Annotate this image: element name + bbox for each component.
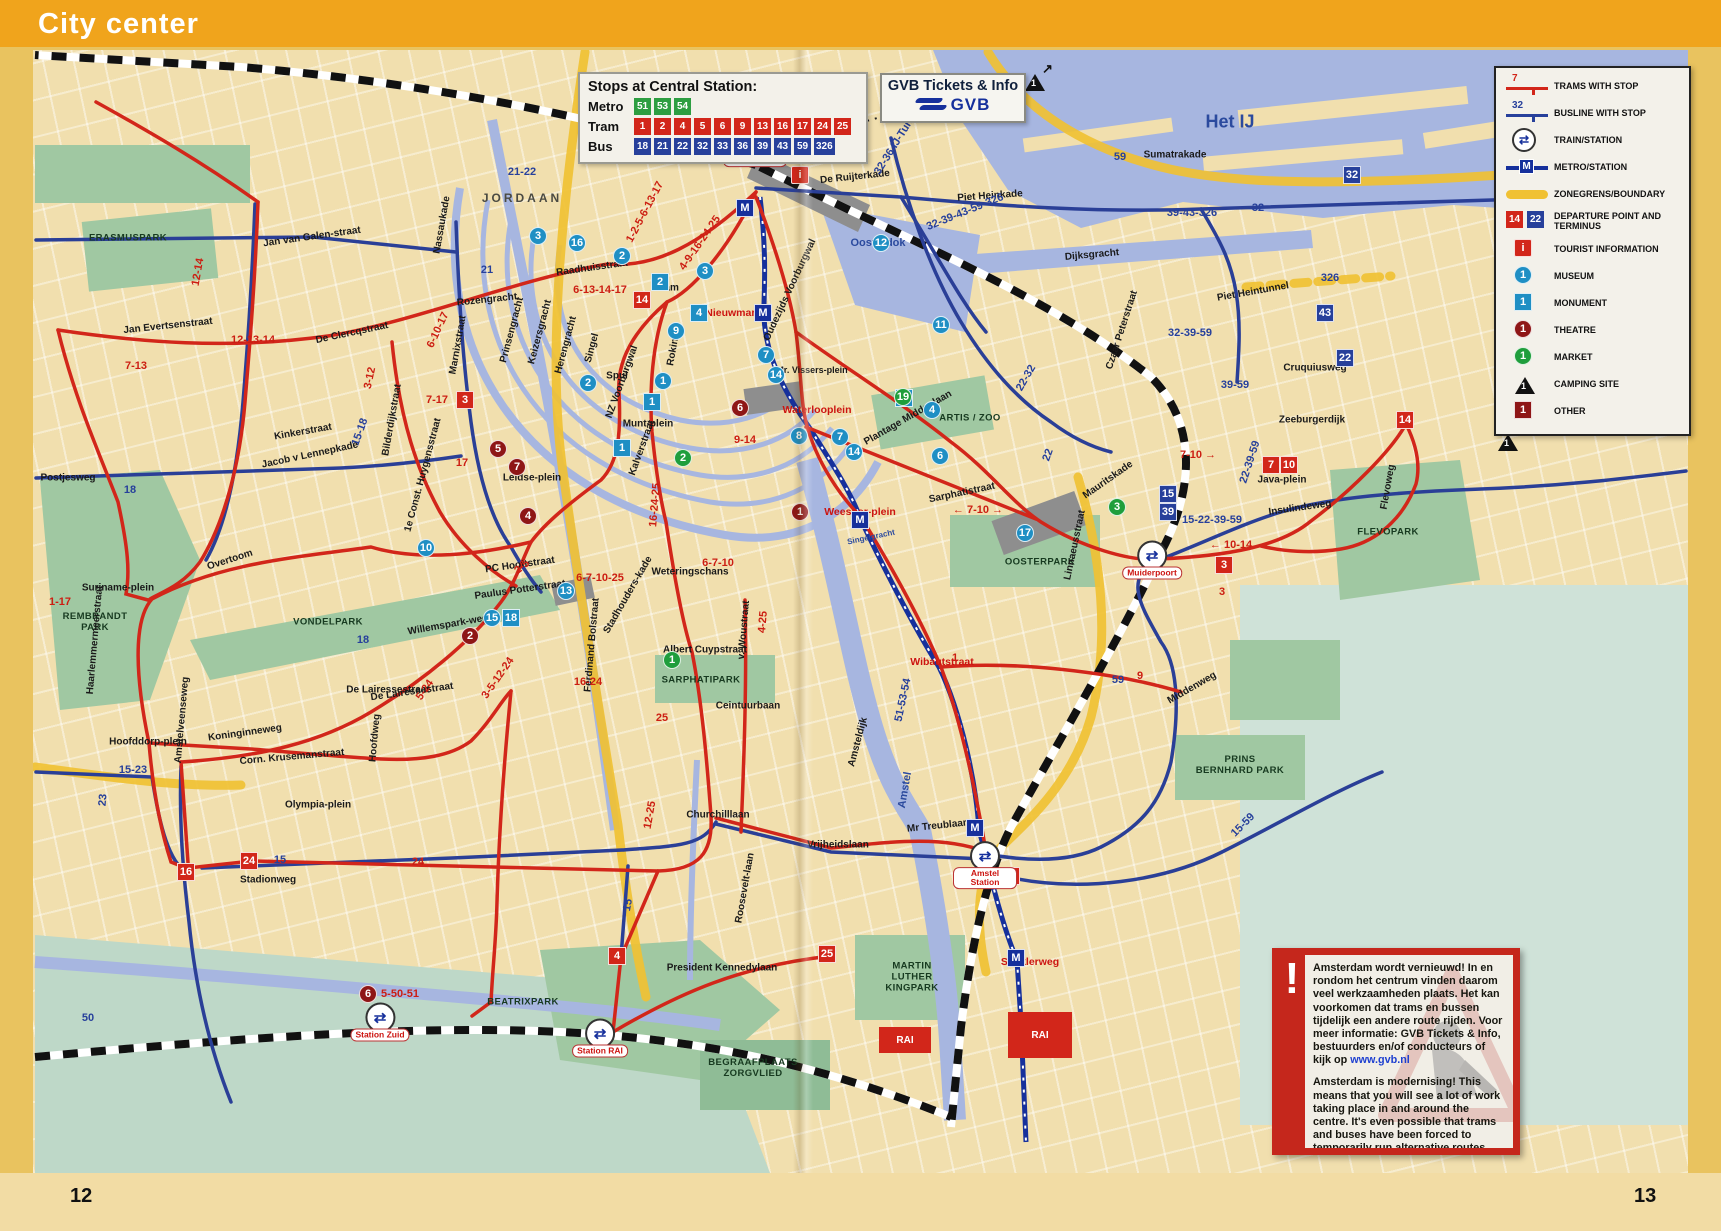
line-number-badge: 4 (674, 118, 691, 135)
museum-badge: 10 (417, 539, 435, 557)
legend-line (1506, 87, 1548, 90)
zone-icon (1504, 184, 1554, 204)
theatre-badge: 7 (508, 458, 526, 476)
monument-badge: 1 (613, 439, 631, 457)
legend-item-museum: 1MUSEUM (1504, 266, 1683, 286)
stops-box: Stops at Central Station: Metro515354Tra… (578, 72, 868, 164)
market-icon: 1 (1504, 347, 1554, 367)
monument-badge: 4 (690, 304, 708, 322)
line-number-badge: 21 (654, 138, 671, 155)
line-number-badge: 54 (674, 98, 691, 115)
gvb-logo: GVB (882, 95, 1024, 115)
map-legend: 7TRAMS WITH STOP32BUSLINE WITH STOP⇄TRAI… (1494, 66, 1691, 436)
monument-badge: 2 (651, 273, 669, 291)
warning-english-text: Amsterdam is modernising! This means tha… (1313, 1076, 1503, 1148)
gvb-logo-text: GVB (951, 95, 991, 115)
monument-icon: 1 (1514, 293, 1532, 311)
museum-badge: 2 (613, 247, 631, 265)
gvb-url-dutch: www.gvb.nl (1350, 1054, 1410, 1066)
line-number-badge: 25 (834, 118, 851, 135)
tourist-info-icon: i (1514, 239, 1532, 257)
line-number-badge: 13 (754, 118, 771, 135)
tram-badge: 24 (240, 852, 258, 870)
line-number-badge: 17 (794, 118, 811, 135)
metro-badge: M (851, 511, 869, 529)
metro-m-icon: M (1519, 159, 1534, 174)
warning-text-panel: Amsterdam wordt vernieuwd! In en rondom … (1305, 955, 1513, 1148)
train-icon: ⇄ (1504, 130, 1554, 150)
tram-badge: 3 (456, 391, 474, 409)
line-number-badge: 5 (694, 118, 711, 135)
museum-badge: 2 (579, 374, 597, 392)
metro-icon: M (1504, 157, 1554, 177)
stops-row-label: Tram (588, 119, 634, 134)
legend-line-number: 32 (1512, 100, 1523, 111)
line-number-badge: 39 (754, 138, 771, 155)
warning-dutch-text: Amsterdam wordt vernieuwd! In en rondom … (1313, 962, 1502, 1066)
gvb-info-box: GVB Tickets & Info GVB (880, 73, 1026, 123)
stops-row-label: Bus (588, 139, 634, 154)
roadworks-warning-box: ! Amsterdam wordt vernieuwd! In en rondo… (1272, 948, 1520, 1155)
legend-label: TRAMS WITH STOP (1554, 81, 1638, 91)
theatre-badge: 6 (731, 399, 749, 417)
museum-badge: 6 (931, 447, 949, 465)
monument-badge: 18 (502, 609, 520, 627)
line-number-badge: 53 (654, 98, 671, 115)
legend-stop-tick (1532, 87, 1535, 95)
line-number-badge: 18 (634, 138, 651, 155)
theatre-badge: 6 (359, 985, 377, 1003)
museum-badge: 9 (667, 322, 685, 340)
departure-badges: 1422 (1506, 211, 1544, 228)
stops-rows: Metro515354Tram1245691316172425Bus182122… (588, 98, 858, 155)
legend-label: DEPARTURE POINT AND TERMINUS (1554, 211, 1683, 232)
other-icon: 1 (1514, 401, 1532, 419)
camp-icon: 1 (1504, 374, 1554, 394)
exclamation-icon: ! (1279, 955, 1305, 1148)
stops-row-badges: 515354 (634, 98, 691, 115)
tram-icon: 7 (1504, 76, 1554, 96)
legend-label: BUSLINE WITH STOP (1554, 108, 1646, 118)
museum-badge: 14 (767, 366, 785, 384)
museum-badge: 11 (932, 316, 950, 334)
museum-badge: 1 (654, 372, 672, 390)
legend-item-dep: 1422DEPARTURE POINT AND TERMINUS (1504, 211, 1683, 232)
metro-badge: M (754, 304, 772, 322)
museum-badge: 7 (757, 346, 775, 364)
legend-label: METRO/STATION (1554, 162, 1627, 172)
line-number-badge: 24 (814, 118, 831, 135)
legend-label: ZONEGRENS/BOUNDARY (1554, 189, 1665, 199)
rai-building: RAI (879, 1027, 931, 1053)
page-title: City center (38, 8, 199, 41)
stops-box-title: Stops at Central Station: (588, 79, 858, 95)
info-icon: i (1504, 239, 1554, 259)
gvb-box-title: GVB Tickets & Info (882, 78, 1024, 94)
line-number-badge: 1 (634, 118, 651, 135)
bus-badge: 22 (1336, 349, 1354, 367)
legend-item-info: iTOURIST INFORMATION (1504, 239, 1683, 259)
legend-label: OTHER (1554, 406, 1586, 416)
warning-english-paragraph: Amsterdam is modernising! This means tha… (1313, 1076, 1505, 1148)
line-number-badge: 16 (774, 118, 791, 135)
legend-line-number: 7 (1512, 73, 1518, 84)
stops-row-tram: Tram1245691316172425 (588, 118, 858, 135)
tram-badge: 7 (1262, 456, 1280, 474)
tram-badge: 25 (818, 945, 836, 963)
page-number-right: 13 (1634, 1185, 1656, 1208)
tram-badge: 4 (608, 947, 626, 965)
stops-row-badges: 1245691316172425 (634, 118, 851, 135)
other-icon: 1 (1504, 401, 1554, 421)
tram-terminus-badge: 14 (1506, 211, 1523, 228)
line-number-badge: 6 (714, 118, 731, 135)
metro-badge: M (966, 819, 984, 837)
museum-icon: 1 (1504, 266, 1554, 286)
legend-label: THEATRE (1554, 325, 1596, 335)
scanned-map-page: City center (0, 0, 1721, 1231)
theatre-badge: 5 (489, 440, 507, 458)
museum-badge: 12 (872, 234, 890, 252)
tram-badge: 14 (1396, 411, 1414, 429)
museum-badge: 14 (845, 443, 863, 461)
line-number-badge: 43 (774, 138, 791, 155)
legend-item-zone: ZONEGRENS/BOUNDARY (1504, 184, 1683, 204)
museum-badge: 3 (529, 227, 547, 245)
museum-badge: 17 (1016, 524, 1034, 542)
metro-badge: M (736, 199, 754, 217)
page-bottom-margin: 12 13 (0, 1173, 1721, 1231)
line-number-badge: 36 (734, 138, 751, 155)
camping-icon: 1 (1512, 374, 1538, 396)
tram-badge: 14 (633, 291, 651, 309)
tram-badge: 10 (1280, 456, 1298, 474)
legend-label: TRAIN/STATION (1554, 135, 1622, 145)
legend-item-camp: 1CAMPING SITE (1504, 374, 1683, 394)
legend-item-train: ⇄TRAIN/STATION (1504, 130, 1683, 150)
legend-label: MONUMENT (1554, 298, 1607, 308)
market-badge: 2 (674, 449, 692, 467)
rai-building: RAI (1008, 1012, 1072, 1058)
theatre-badge: 2 (461, 627, 479, 645)
bus-badge: 15 (1159, 485, 1177, 503)
legend-item-bus: 32BUSLINE WITH STOP (1504, 103, 1683, 123)
metro-badge: M (1007, 949, 1025, 967)
market-badge: 3 (1108, 498, 1126, 516)
line-number-badge: 32 (694, 138, 711, 155)
gvb-waves-icon (916, 97, 946, 113)
museum-icon: 1 (1514, 266, 1532, 284)
page-left-margin (0, 47, 33, 1173)
bus-icon: 32 (1504, 103, 1554, 123)
line-number-badge: 22 (674, 138, 691, 155)
market-badge: 1 (663, 651, 681, 669)
line-number-badge: 33 (714, 138, 731, 155)
line-number-badge: 9 (734, 118, 751, 135)
line-number-badge: 51 (634, 98, 651, 115)
market-icon: 1 (1514, 347, 1532, 365)
theatre-icon: 1 (1514, 320, 1532, 338)
line-number-badge: 326 (814, 138, 835, 155)
zone-boundary-icon (1506, 190, 1548, 199)
theatre-icon: 1 (1504, 320, 1554, 340)
legend-label: CAMPING SITE (1554, 379, 1619, 389)
museum-badge: 3 (696, 262, 714, 280)
stops-row-metro: Metro515354 (588, 98, 858, 115)
legend-item-other: 1OTHER (1504, 401, 1683, 421)
legend-item-market: 1MARKET (1504, 347, 1683, 367)
monument-badge: 1 (643, 393, 661, 411)
legend-line (1506, 114, 1548, 117)
museum-badge: 15 (483, 609, 501, 627)
museum-badge: 7 (831, 428, 849, 446)
warning-dutch-paragraph: Amsterdam wordt vernieuwd! In en rondom … (1313, 962, 1505, 1067)
page-right-margin (1688, 47, 1721, 1173)
tram-badge: 12 (1002, 867, 1020, 885)
museum-badge: 16 (568, 234, 586, 252)
market-badge: 19 (894, 388, 912, 406)
legend-item-tram: 7TRAMS WITH STOP (1504, 76, 1683, 96)
stops-row-bus: Bus182122323336394359326 (588, 138, 858, 155)
legend-label: MUSEUM (1554, 271, 1594, 281)
bus-terminus-badge: 22 (1527, 211, 1544, 228)
legend-stop-tick (1532, 114, 1535, 122)
theatre-badge: 4 (519, 507, 537, 525)
bus-badge: 32 (1343, 166, 1361, 184)
dep-icon: 1422 (1504, 211, 1554, 231)
tram-badge: 3 (1215, 556, 1233, 574)
line-number-badge: 59 (794, 138, 811, 155)
page-header: City center (0, 0, 1721, 47)
line-number-badge: 2 (654, 118, 671, 135)
page-fold-shadow (793, 50, 813, 1173)
stops-row-badges: 182122323336394359326 (634, 138, 835, 155)
museum-badge: 13 (557, 582, 575, 600)
page-number-left: 12 (70, 1185, 92, 1208)
monument-icon: 1 (1504, 293, 1554, 313)
bus-badge: 39 (1159, 503, 1177, 521)
legend-label: TOURIST INFORMATION (1554, 244, 1659, 254)
legend-item-theatre: 1THEATRE (1504, 320, 1683, 340)
legend-label: MARKET (1554, 352, 1593, 362)
legend-item-metro: MMETRO/STATION (1504, 157, 1683, 177)
tram-badge: 16 (177, 863, 195, 881)
bus-badge: 43 (1316, 304, 1334, 322)
legend-item-monument: 1MONUMENT (1504, 293, 1683, 313)
stops-row-label: Metro (588, 99, 634, 114)
museum-badge: 4 (923, 401, 941, 419)
train-station-icon: ⇄ (1512, 128, 1536, 152)
